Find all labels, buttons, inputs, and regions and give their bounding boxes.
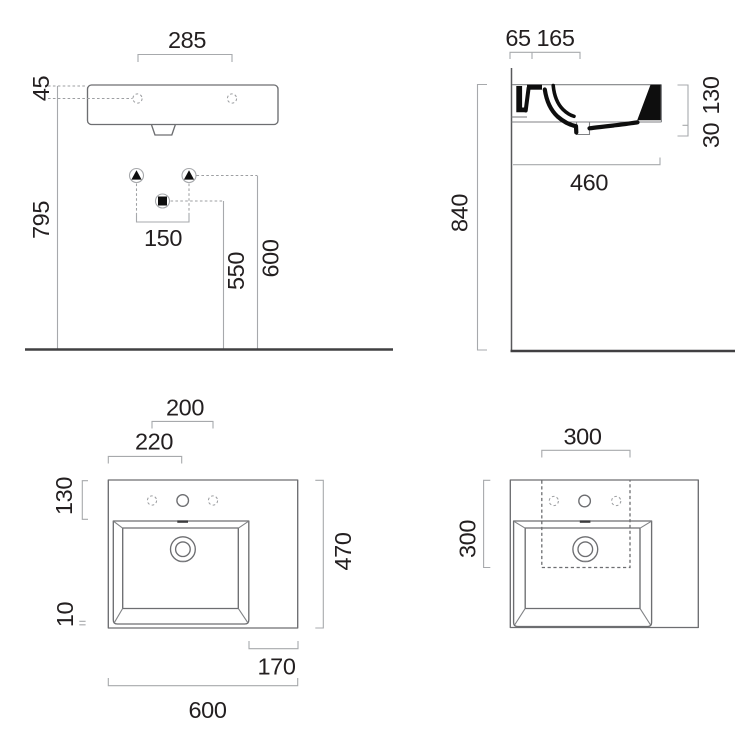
- dim-tap-hole-spacing-bracket: [138, 55, 232, 63]
- side-section-view: 65 165 840 130 30 460: [447, 25, 736, 351]
- section-deck-back: [526, 88, 529, 111]
- dim-total-width-label: 600: [188, 697, 226, 723]
- drain-symbol-square-icon: [158, 197, 167, 206]
- dim-edge-to-centre-tap-bracket: [108, 456, 181, 463]
- dim-outer-tap-spacing-label: 200: [166, 395, 204, 421]
- plan-alt-tap-hole-right: [612, 496, 621, 505]
- fixing-symbol-right-triangle-icon: [184, 170, 194, 179]
- dim-rim-to-floor-label: 840: [447, 194, 473, 232]
- dim-wall-to-tap-label: 65: [505, 25, 531, 51]
- section-tap-deck: [527, 85, 542, 90]
- dim-outer-tap-spacing-bracket: [152, 421, 213, 428]
- technical-drawing-canvas: 285 45 795 150 550 600 65 165: [0, 0, 750, 750]
- dim-total-depth-label: 470: [330, 532, 356, 570]
- dim-basin-depth-label: 460: [570, 170, 608, 196]
- plan-alt-tap-hole-left: [549, 496, 558, 505]
- dim-bowl-to-right-edge-bracket: [249, 641, 298, 649]
- plan-tap-hole-left: [147, 496, 156, 505]
- dim-cutout-width-label: 300: [563, 424, 601, 450]
- dim-bowl-to-front-edge-label: 10: [52, 602, 78, 628]
- plan-tap-hole-centre: [177, 495, 189, 507]
- dim-drain-to-floor-label: 550: [223, 252, 249, 290]
- dim-cutout-depth-bracket: [484, 480, 491, 567]
- dim-fixing-spacing-bracket: [137, 213, 190, 222]
- basin-plan-outline-alt: [510, 480, 698, 628]
- dim-cutout-depth-label: 300: [455, 520, 481, 558]
- technical-drawing-page: 285 45 795 150 550 600 65 165: [0, 0, 750, 750]
- basin-plan-outline: [108, 480, 297, 628]
- plan-alt-tap-hole-centre: [579, 495, 591, 507]
- dim-tap-to-bowl-label: 165: [536, 25, 574, 51]
- dim-fixing-to-floor-label: 600: [258, 239, 284, 277]
- tap-hole-left-hidden: [133, 94, 142, 103]
- bowl-bottom-outline: [123, 528, 239, 609]
- section-bowl-back-inner: [553, 86, 574, 117]
- dim-total-depth-bracket: [315, 480, 323, 628]
- dim-bowl-to-right-edge-label: 170: [257, 654, 295, 680]
- section-bowl-back-outer: [545, 90, 577, 133]
- tap-hole-right-hidden: [227, 94, 236, 103]
- drain-outer-ring-alt: [573, 537, 598, 562]
- dim-tap-hole-spacing-label: 285: [168, 27, 206, 53]
- cutout-dashed-outline: [542, 481, 630, 568]
- dim-basin-depth-bracket: [513, 158, 660, 165]
- plan-tap-hole-right: [208, 496, 217, 505]
- dim-basin-height-label: 130: [698, 76, 724, 114]
- section-back-wall: [516, 86, 524, 112]
- dim-rim-to-tap-hole-label: 45: [28, 76, 54, 102]
- dim-tap-hole-to-floor-label: 795: [28, 201, 54, 239]
- section-front-wall: [637, 85, 661, 121]
- front-elevation-view: 285 45 795 150 550 600: [25, 27, 393, 350]
- dim-rim-to-floor-bracket: [478, 85, 488, 351]
- dim-back-edge-to-bowl-label: 130: [51, 477, 77, 515]
- plan-view: 200 220 130 10 470 170 600: [51, 395, 356, 724]
- dim-bowl-to-front-edge-ticks: [79, 621, 85, 625]
- dim-tap-position-bracket: [510, 52, 580, 59]
- dim-cutout-width-bracket: [542, 450, 630, 457]
- dim-fixing-spacing-label: 150: [144, 225, 182, 251]
- plan-view-with-cutout: 300 300: [455, 424, 699, 628]
- basin-front-outline: [88, 85, 279, 125]
- fixing-symbol-left-triangle-icon: [131, 170, 141, 179]
- drain-inner-ring-alt: [578, 542, 593, 557]
- dim-basin-height-bracket: [678, 85, 689, 136]
- dim-edge-to-centre-tap-label: 220: [135, 429, 173, 455]
- dim-apron-drop-label: 30: [698, 123, 724, 149]
- drain-trap-front: [152, 125, 176, 135]
- dim-back-edge-to-bowl-bracket: [82, 481, 88, 520]
- section-bowl-bottom: [590, 122, 638, 128]
- drain-outer-ring: [171, 537, 196, 562]
- drain-inner-ring: [176, 542, 191, 557]
